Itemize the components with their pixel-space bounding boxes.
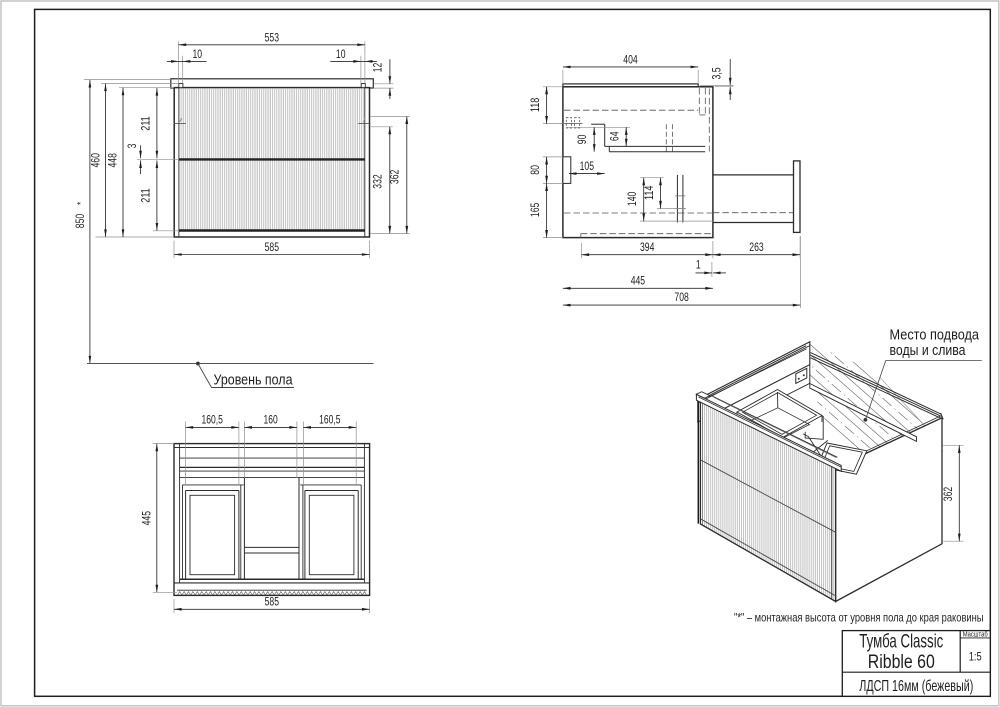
svg-text:105: 105 bbox=[580, 159, 595, 173]
svg-text:362: 362 bbox=[941, 487, 955, 502]
svg-text:448: 448 bbox=[106, 153, 120, 168]
svg-text:585: 585 bbox=[265, 595, 280, 609]
svg-text:165: 165 bbox=[528, 202, 542, 217]
svg-text:3: 3 bbox=[125, 143, 139, 148]
svg-text:263: 263 bbox=[749, 240, 764, 254]
svg-text:445: 445 bbox=[631, 273, 646, 287]
svg-text:ЛДСП 16мм (бежевый): ЛДСП 16мм (бежевый) bbox=[859, 678, 973, 695]
svg-text:114: 114 bbox=[642, 185, 656, 200]
svg-text:140: 140 bbox=[625, 191, 639, 206]
svg-text:1: 1 bbox=[696, 258, 701, 272]
svg-text:Ribble 60: Ribble 60 bbox=[868, 651, 935, 673]
svg-text:332: 332 bbox=[371, 174, 385, 189]
svg-text:1:5: 1:5 bbox=[969, 651, 982, 663]
svg-text:80: 80 bbox=[528, 165, 542, 175]
svg-text:"*" – монтажная высота от уров: "*" – монтажная высота от уровня пола до… bbox=[734, 611, 984, 625]
svg-text:211: 211 bbox=[139, 116, 153, 131]
svg-text:118: 118 bbox=[528, 97, 542, 112]
svg-text:64: 64 bbox=[607, 131, 621, 141]
svg-text:362: 362 bbox=[387, 169, 401, 184]
svg-text:*: * bbox=[75, 202, 87, 205]
svg-text:850: 850 bbox=[73, 214, 87, 229]
svg-text:12: 12 bbox=[370, 62, 384, 72]
svg-text:394: 394 bbox=[640, 240, 655, 254]
svg-text:211: 211 bbox=[139, 188, 153, 203]
svg-text:585: 585 bbox=[265, 240, 280, 254]
svg-text:460: 460 bbox=[88, 153, 102, 168]
svg-text:160,5: 160,5 bbox=[319, 412, 341, 426]
svg-text:Масштаб: Масштаб bbox=[963, 631, 988, 639]
svg-text:404: 404 bbox=[623, 52, 638, 66]
svg-text:3,5: 3,5 bbox=[710, 67, 724, 79]
svg-text:708: 708 bbox=[674, 290, 689, 304]
svg-text:553: 553 bbox=[265, 30, 280, 44]
svg-text:Тумба Classic: Тумба Classic bbox=[859, 631, 943, 653]
svg-text:10: 10 bbox=[336, 47, 346, 61]
svg-text:Уровень пола: Уровень пола bbox=[214, 373, 294, 389]
svg-text:445: 445 bbox=[140, 511, 154, 526]
svg-text:160,5: 160,5 bbox=[202, 412, 224, 426]
svg-text:160: 160 bbox=[264, 412, 279, 426]
svg-text:10: 10 bbox=[193, 47, 203, 61]
svg-text:воды и слива: воды и слива bbox=[890, 342, 967, 359]
svg-text:90: 90 bbox=[575, 134, 589, 144]
